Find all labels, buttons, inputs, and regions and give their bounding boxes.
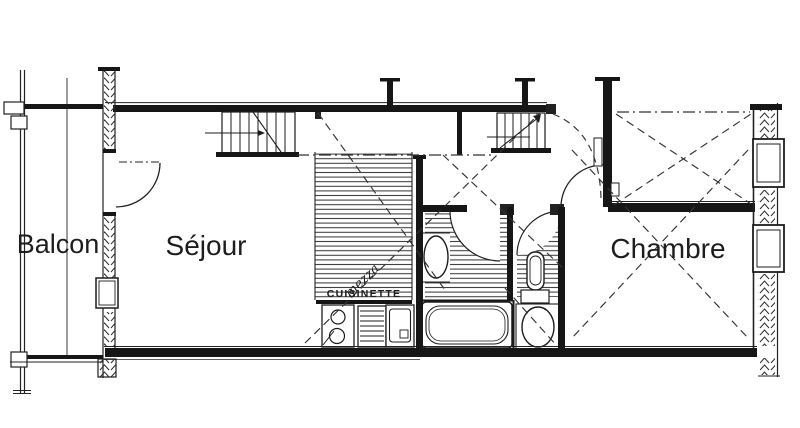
right-exterior-wall <box>750 103 784 377</box>
bedroom-window-2 <box>753 225 784 272</box>
left-wall-window <box>96 278 118 308</box>
fridge-unit <box>358 306 386 347</box>
kitchen-sink <box>386 305 414 347</box>
bedroom-label: Chambre <box>610 233 725 264</box>
bathtub <box>422 302 512 348</box>
bedroom-window-1 <box>753 139 784 187</box>
wc-basin <box>516 304 561 349</box>
left-exterior-wall <box>96 67 120 378</box>
balcony-label: Balcon <box>17 229 100 259</box>
floor-plan-page: Balcon Séjour Chambre CUISINETTE mezza <box>0 0 800 428</box>
washbasin <box>424 236 448 278</box>
living-room-label: Séjour <box>166 230 247 261</box>
bedroom-door <box>561 165 603 207</box>
mezzanine-stairs-1 <box>205 112 299 157</box>
floor-plan: Balcon Séjour Chambre CUISINETTE mezza <box>0 0 800 428</box>
balcony-door <box>116 162 160 207</box>
kitchen-counter <box>316 300 414 347</box>
